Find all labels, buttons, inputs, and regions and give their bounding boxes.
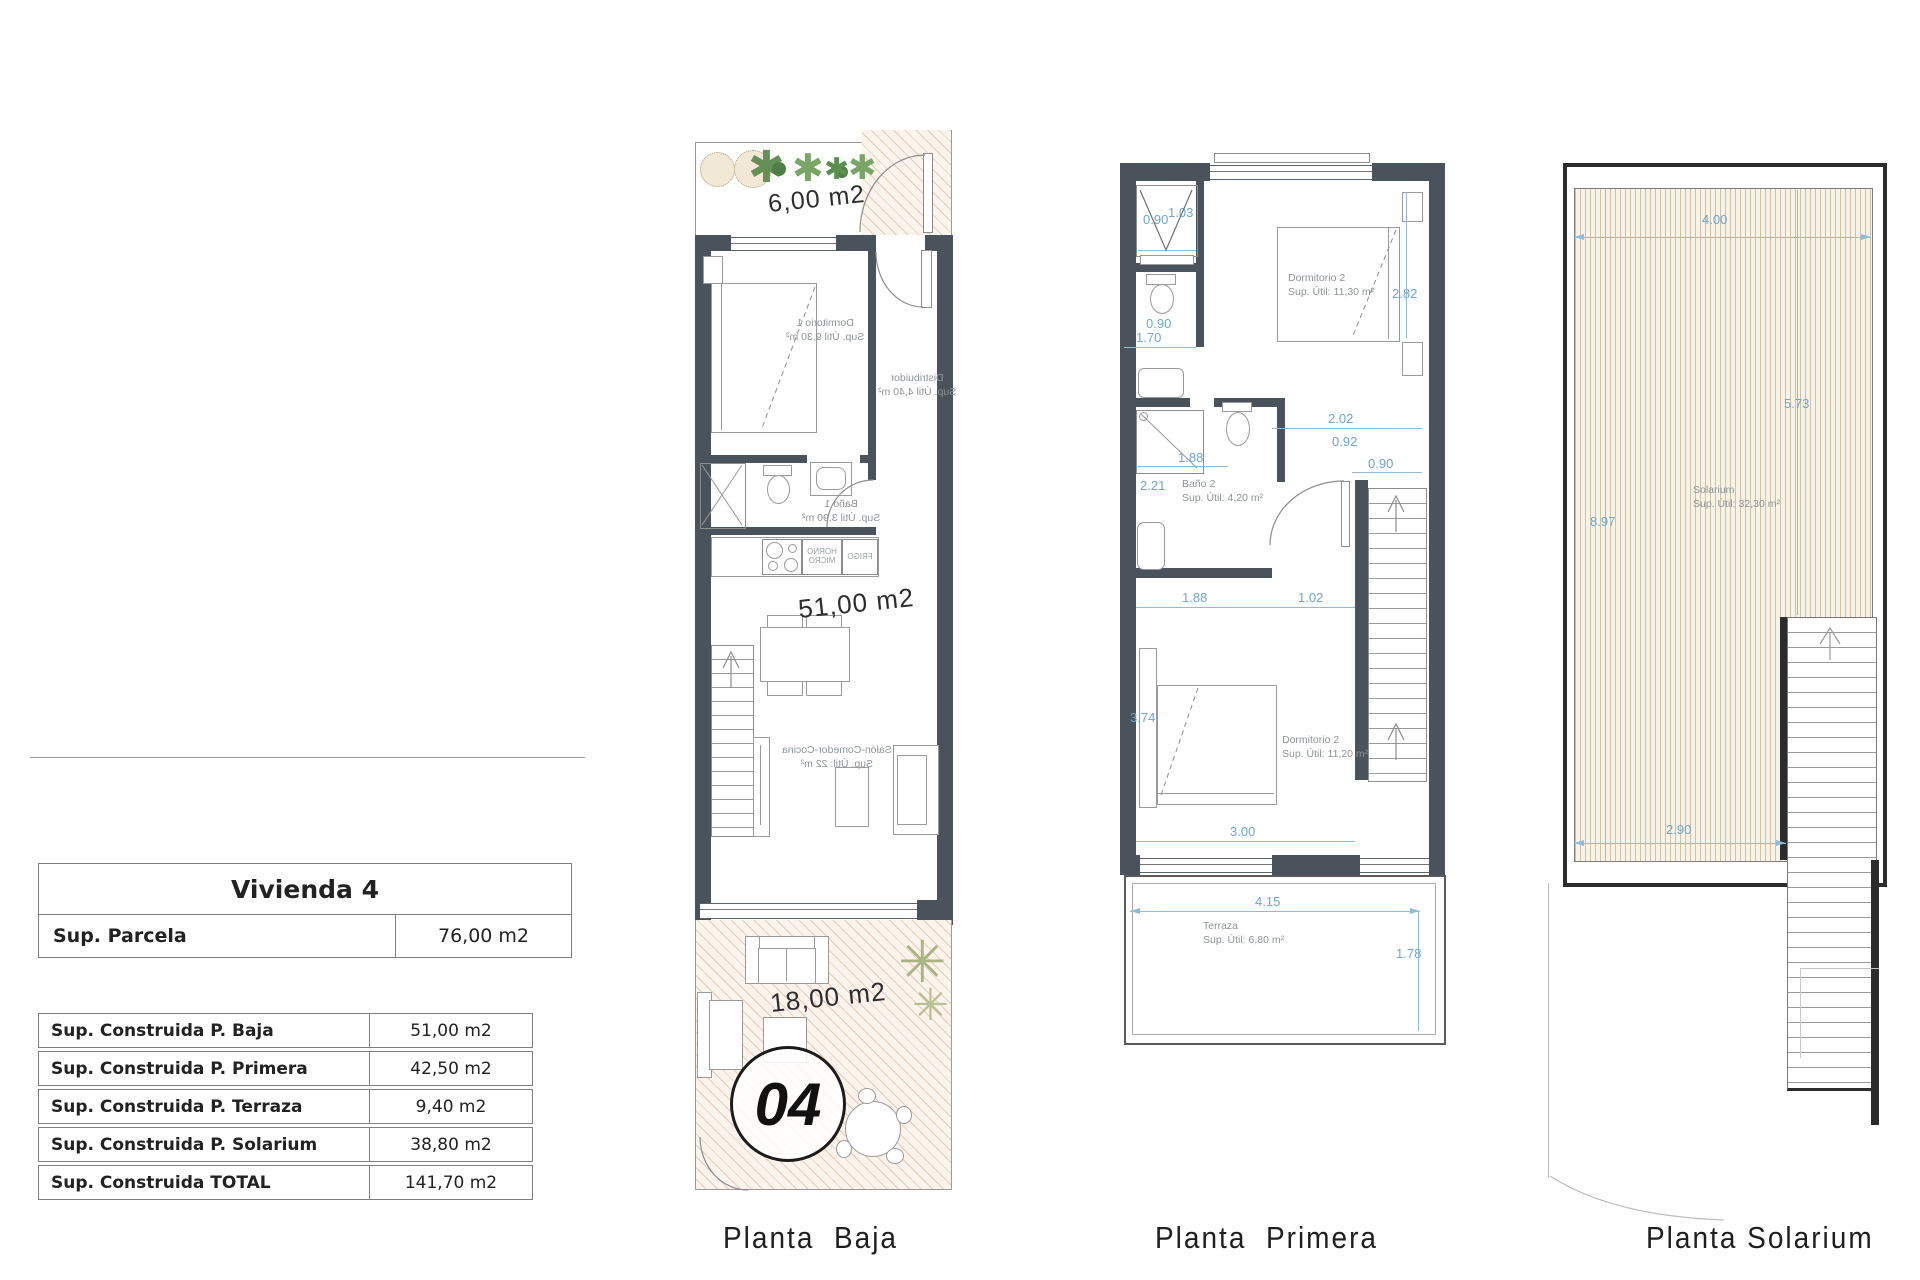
hob-burner [788,544,797,553]
room-name: Baño 1 [802,498,880,512]
toilet-tank [1222,402,1252,412]
row-value: 38,80 m2 [370,1128,532,1161]
nightstand [1402,342,1423,376]
row-label: Sup. Construida P. Primera [39,1052,370,1085]
shower-drain [1139,412,1148,421]
dim-line [1136,466,1228,467]
tv-unit [753,737,770,837]
table-row: Sup. Construida P. Baja 51,00 m2 [38,1013,533,1048]
table-row: Sup. Construida TOTAL 141,70 m2 [38,1165,533,1200]
room-label-solarium: Solarium Sup. Útil: 32,30 m² [1693,484,1780,511]
dim-bed2-a: 1.88 [1182,590,1207,605]
room-label-bano2: Baño 2 Sup. Útil: 4,20 m² [1182,478,1263,505]
dim-solarium-right: 5.73 [1784,396,1809,411]
outdoor-sofa-seat [758,948,816,984]
entry-door-leaf-inner [921,250,932,308]
dim-terrace-width: 4.15 [1255,894,1280,909]
dim-hall-a: 2.02 [1328,411,1353,426]
row-value: 51,00 m2 [370,1014,532,1047]
wall [1120,855,1140,875]
hob-burner [766,542,783,559]
room-label-dormitorio2: Dormitorio 2 Sup. Útil: 11,30 m² [1288,272,1374,299]
interior-wall [711,455,807,463]
terrace-edge [951,920,952,1190]
closet-shelf [1140,255,1194,265]
row-value: 141,70 m2 [370,1166,532,1199]
table-row: Sup. Construida P. Terraza 9,40 m2 [38,1089,533,1124]
caption-planta-baja: Planta Baja [723,1220,898,1255]
bed [711,283,817,433]
row-value: 9,40 m2 [370,1090,532,1123]
dim-wc-width: 0.90 [1146,316,1171,331]
bed [1157,685,1277,805]
outdoor-sofa-split [786,949,787,981]
table-row: Sup. Construida P. Primera 42,50 m2 [38,1051,533,1086]
door-arc [876,252,923,307]
staircase [1368,488,1427,782]
toilet-bowl [767,475,790,504]
dim-closet-depth: 1.03 [1168,205,1193,220]
room-area: Sup. Útil: 4,20 m² [1182,492,1263,506]
patio-chair [858,1088,876,1104]
floorplan-sheet: Vivienda 4 Sup. Parcela 76,00 m2 Sup. Co… [0,0,1920,1280]
coffee-table [835,767,869,827]
room-name: Baño 2 [1182,478,1263,492]
dim-shower-width: 1.88 [1178,450,1203,465]
door-leaf [1341,481,1350,547]
patio-chair [896,1106,912,1124]
row-label: Sup. Construida TOTAL [39,1166,370,1199]
room-name: Distribuidor [878,372,956,386]
room-label-dormitorio2b: Dormitorio 2 Sup. Útil: 11,20 m² [1282,734,1368,761]
room-area: Sup. Útil: 22 m² [782,758,892,772]
room-area: Sup. Útil: 6,80 m² [1203,934,1284,948]
dim-line [1574,843,1786,844]
chair [767,681,803,696]
dim-wc-total: 1.70 [1136,330,1161,345]
room-name: Solarium [1693,484,1780,498]
room-area: Sup. Útil 4,40 m² [878,386,956,400]
plant-icon [772,162,786,176]
room-name: Dormitorio 1 [786,317,864,331]
room-label-salon: Salón-Comedor-Cocina Sup. Útil: 22 m² [782,744,892,771]
dim-line [1574,237,1871,238]
hob-burner [768,561,778,571]
sliding-door [700,903,917,919]
row-value: 76,00 m2 [396,915,571,957]
dim-line [1130,911,1420,912]
patio-chair [886,1148,904,1164]
interior-wall [1136,398,1190,407]
garden-right-line [951,130,952,235]
room-name: Dormitorio 2 [1288,272,1374,286]
dim-solarium-left: 8.97 [1590,514,1615,529]
sink-basin [1138,368,1184,398]
wall [1429,163,1445,875]
dim-line [1406,192,1407,338]
room-name: Terraza [1203,920,1284,934]
room-label-terraza: Terraza Sup. Útil: 6,80 m² [1203,920,1284,947]
room-label-dormitorio1: Dormitorio 1 Sup. Útil 9,30 m² [786,317,864,344]
dim-line [1124,347,1196,348]
room-label-distribuidor: Distribuidor Sup. Útil 4,40 m² [878,372,956,399]
terrace-door [1360,858,1429,873]
summary-table: Vivienda 4 Sup. Parcela 76,00 m2 [38,863,572,958]
table-title: Vivienda 4 [39,864,571,915]
oven-micro-unit: HORNO MICRO [802,539,842,575]
staircase [711,645,754,837]
armchair-seat [709,1000,743,1070]
ground-curve [1550,1176,1724,1220]
room-area: Sup. Útil: 11,30 m² [1288,286,1374,300]
bed-headboard-line [1388,228,1389,339]
shrub-plant [700,152,735,187]
dim-bed2-height: 3.74 [1130,710,1155,725]
floor-area-label: 51,00 m2 [797,582,916,625]
sofa-seat [897,755,927,825]
dim-line [1352,472,1422,473]
dim-stair-width: 0.90 [1368,456,1393,471]
dim-bed2-b: 1.02 [1298,590,1323,605]
terrace-edge [695,1189,952,1190]
room-label-bano1: Baño 1 Sup. Útil 3,90 m² [802,498,880,525]
dim-bano-height: 2.21 [1140,478,1165,493]
row-label: Sup. Construida P. Baja [39,1014,370,1047]
window [1210,165,1372,180]
ground-outline [1800,968,1879,969]
caption-planta-solarium: Planta Solarium [1646,1220,1874,1255]
window [731,237,836,251]
fridge-unit: FRIGO [842,539,878,575]
window [1140,858,1272,873]
dim-line [1272,428,1422,429]
dim-bed-height: 2.82 [1392,286,1417,301]
hob-burner [784,558,798,572]
interior-wall [1277,398,1285,482]
toilet-bowl [1150,284,1174,314]
row-label: Sup. Construida P. Terraza [39,1090,370,1123]
wall [1272,855,1360,875]
sink-basin [816,467,846,490]
nightstand [703,256,723,284]
unit-number-badge: 04 [730,1046,846,1162]
room-area: Sup. Útil 3,90 m² [802,512,880,526]
areas-table: Sup. Construida P. Baja 51,00 m2 Sup. Co… [38,1013,533,1203]
dim-closet-width: 0.90 [1143,212,1168,227]
room-name: Dormitorio 2 [1282,734,1368,748]
ground-outline [1548,883,1549,1178]
wall [695,235,711,925]
wardrobe [1139,648,1157,808]
row-value: 42,50 m2 [370,1052,532,1085]
divider-line [30,757,585,758]
wardrobe [700,463,746,529]
wall [1120,163,1136,875]
outdoor-sofa-arm [814,936,829,984]
dim-bed2-width: 3.00 [1230,824,1255,839]
tv-unit-line [760,745,761,825]
terrace-inner-line [1132,883,1436,1035]
dim-line [1136,607,1355,608]
dim-line [1138,250,1196,251]
dim-line [1418,911,1419,1031]
row-label: Sup. Construida P. Solarium [39,1128,370,1161]
stair-shaft-wall [1871,860,1879,1125]
room-area: Sup. Útil 9,30 m² [786,331,864,345]
terrace-edge [695,920,696,1190]
bed-headboard-line [721,284,722,430]
entry-door-leaf [923,153,933,233]
patio-chair [836,1140,852,1158]
door-arc [1270,481,1344,545]
room-area: Sup. Útil: 32,30 m² [1693,498,1780,512]
sink-basin [1137,522,1165,570]
stair-shaft-wall [1780,617,1787,860]
interior-wall [860,455,876,463]
room-name: Salón-Comedor-Cocina [782,744,892,758]
toilet-bowl [1226,412,1250,446]
table-row: Sup. Parcela 76,00 m2 [39,915,571,957]
wall [937,235,953,903]
dim-line [1136,841,1355,842]
chair [806,681,842,696]
garden-left-line [695,142,696,235]
dim-solarium-top: 4.00 [1702,212,1727,227]
dim-solarium-bottom: 2.90 [1666,822,1691,837]
dim-hall-b: 0.92 [1332,434,1357,449]
interior-wall [868,235,876,480]
ground-outline [1800,968,1801,1058]
window-sill [1214,153,1370,163]
terrace-plant-icon: ✳ [912,980,949,1031]
room-area: Sup. Útil: 11,20 m² [1282,748,1368,762]
bed-foot-line [1158,793,1274,794]
caption-planta-primera: Planta Primera [1155,1220,1378,1255]
row-label: Sup. Parcela [39,915,396,957]
table-row: Sup. Construida P. Solarium 38,80 m2 [38,1127,533,1162]
dining-table [760,627,850,682]
